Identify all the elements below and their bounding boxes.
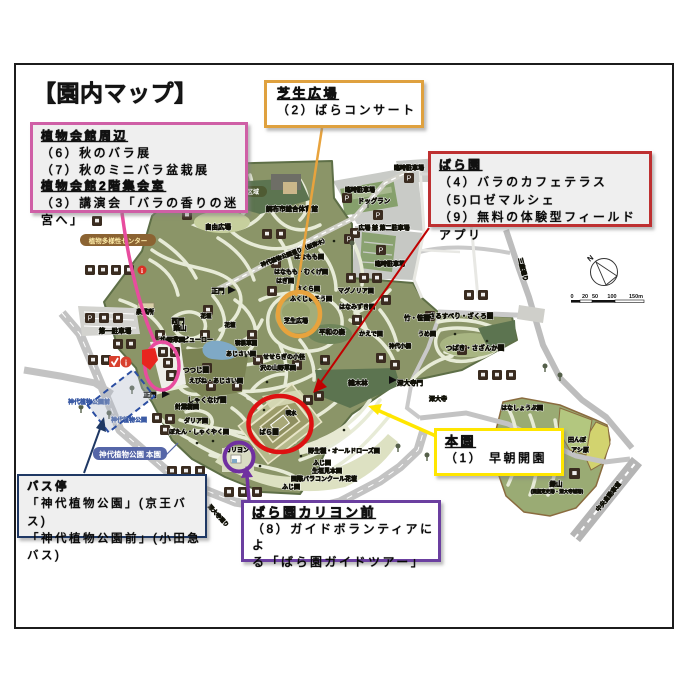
svg-text:150m: 150m [629, 294, 643, 300]
svg-text:100: 100 [607, 294, 616, 300]
svg-text:区域: 区域 [247, 188, 259, 196]
svg-text:植物多様性センター: 植物多様性センター [88, 236, 148, 245]
svg-text:0: 0 [570, 294, 573, 300]
svg-text:20: 20 [582, 294, 588, 300]
svg-text:N: N [585, 253, 595, 263]
svg-text:50: 50 [592, 294, 598, 300]
svg-text:神代植物公園 本園: 神代植物公園 本園 [99, 449, 162, 459]
svg-text:i: i [141, 267, 143, 275]
